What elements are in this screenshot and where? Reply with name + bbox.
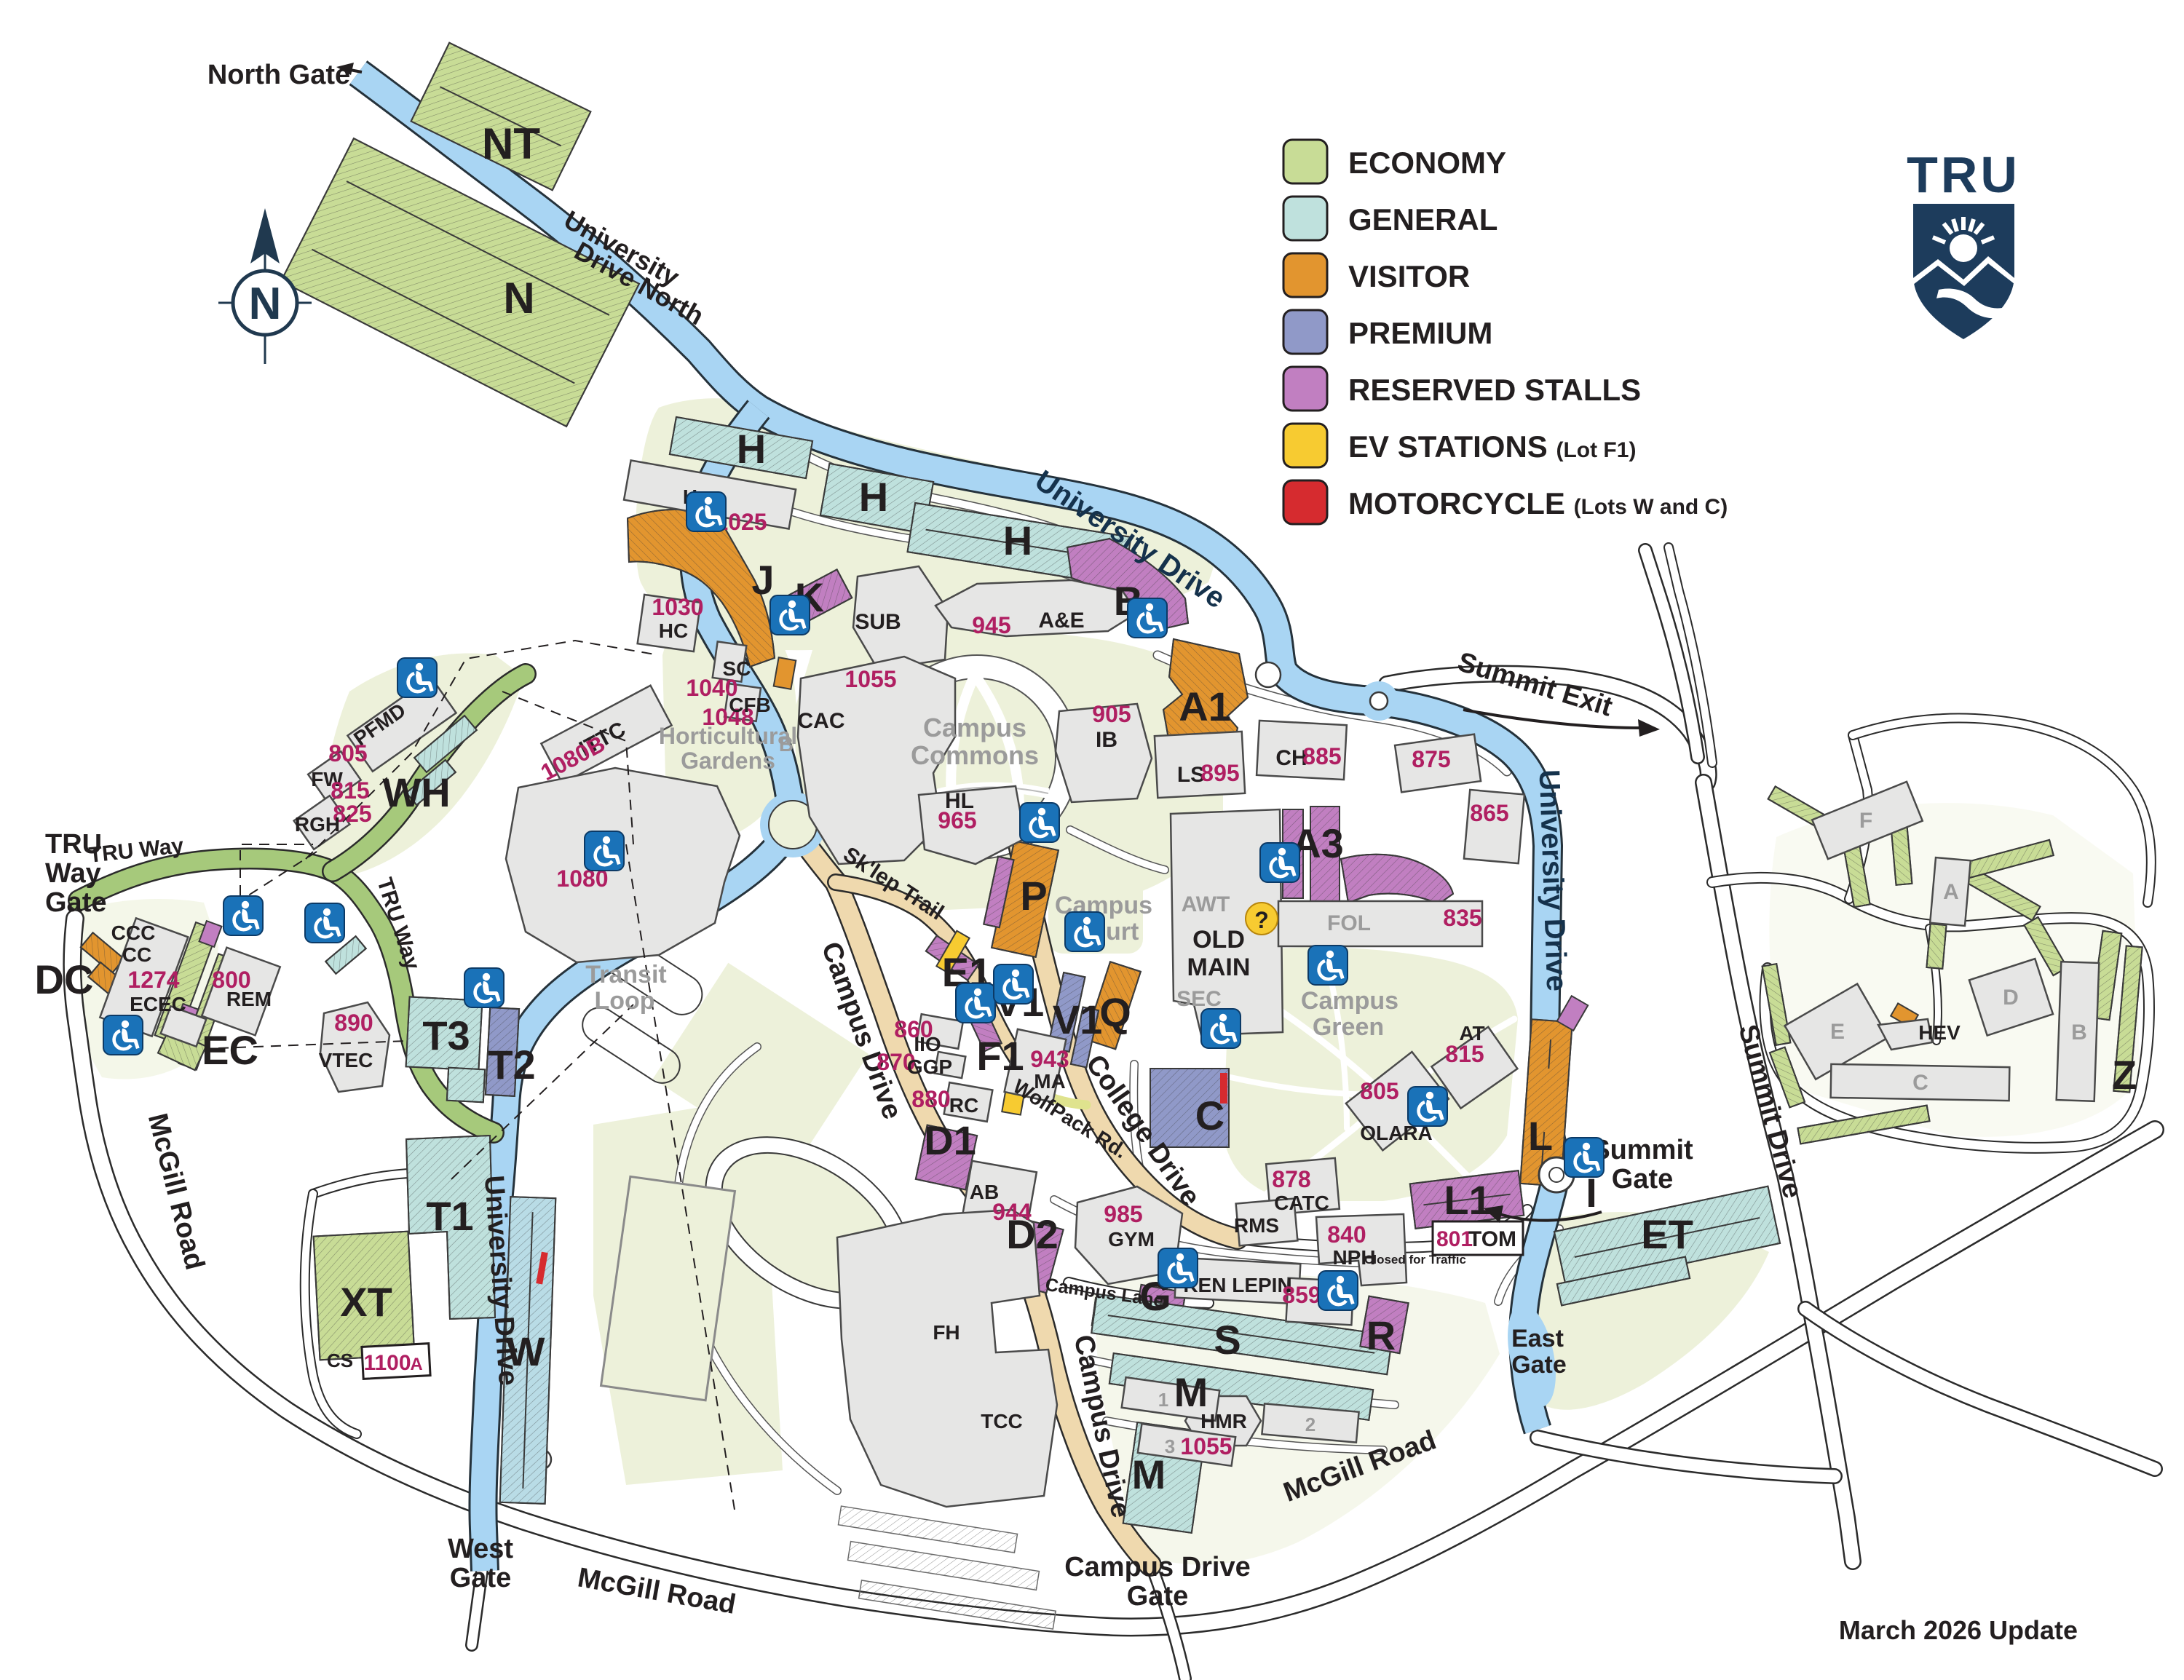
svg-text:Gate: Gate [45,887,106,918]
svg-text:SUB: SUB [855,610,901,634]
svg-text:805: 805 [1360,1078,1398,1104]
svg-text:F: F [1859,809,1872,833]
svg-text:880: 880 [911,1086,950,1112]
svg-text:North Gate: North Gate [207,60,350,90]
svg-text:P: P [1020,873,1047,919]
svg-text:N: N [249,279,282,329]
svg-text:MAIN: MAIN [1187,954,1251,981]
svg-text:E: E [1830,1020,1845,1044]
svg-text:AWT: AWT [1182,892,1230,916]
svg-text:PREMIUM: PREMIUM [1348,316,1492,350]
svg-text:West: West [448,1534,513,1564]
svg-text:885: 885 [1302,743,1341,769]
svg-text:Gate: Gate [1511,1351,1567,1379]
svg-text:WH: WH [382,769,450,815]
svg-text:2: 2 [1305,1414,1315,1435]
svg-text:Z: Z [2112,1052,2137,1098]
svg-text:Closed for Traffic: Closed for Traffic [1364,1253,1466,1267]
svg-text:CFB: CFB [729,694,771,716]
svg-text:SC: SC [723,657,751,680]
svg-text:OLD: OLD [1192,926,1245,954]
svg-text:C: C [1912,1071,1928,1095]
svg-text:Campus: Campus [923,713,1026,742]
svg-text:801: 801 [1436,1227,1473,1251]
svg-text:GYM: GYM [1108,1228,1155,1251]
svg-text:W: W [507,1328,545,1374]
svg-text:H: H [737,426,766,472]
svg-text:?: ? [1254,907,1269,933]
svg-text:T3: T3 [422,1013,470,1058]
svg-text:1: 1 [1158,1389,1168,1411]
svg-text:1100: 1100 [363,1351,411,1375]
svg-text:CS: CS [327,1350,353,1371]
svg-text:985: 985 [1104,1201,1142,1227]
svg-text:CATC: CATC [1274,1192,1329,1214]
svg-text:Campus: Campus [1301,987,1398,1015]
svg-text:3: 3 [1165,1435,1175,1457]
svg-text:REM: REM [226,988,272,1010]
svg-text:N: N [503,274,534,322]
svg-text:Campus Drive: Campus Drive [1064,1552,1251,1582]
svg-text:D1: D1 [924,1117,976,1163]
svg-text:IIO: IIO [914,1033,941,1055]
svg-text:A: A [1943,880,1959,904]
svg-text:TRU: TRU [1907,146,2020,203]
svg-text:M: M [1132,1451,1166,1497]
svg-text:TOM: TOM [1468,1227,1516,1251]
svg-text:1030: 1030 [652,594,703,620]
svg-text:835: 835 [1443,905,1481,931]
svg-text:B: B [779,733,794,756]
svg-text:1055: 1055 [1180,1433,1232,1459]
svg-text:A1: A1 [1179,684,1231,729]
svg-text:805: 805 [328,740,367,766]
svg-text:NT: NT [482,119,540,168]
svg-text:Loop: Loop [594,987,654,1015]
svg-text:J: J [751,557,774,603]
svg-text:EC: EC [202,1027,258,1073]
svg-text:944: 944 [992,1199,1032,1225]
svg-text:875: 875 [1412,746,1450,772]
svg-text:R: R [1366,1312,1396,1358]
svg-text:A&E: A&E [1038,609,1084,633]
svg-text:SEC: SEC [1176,987,1222,1011]
svg-text:HEV: HEV [1918,1021,1961,1044]
svg-text:T1: T1 [426,1193,473,1239]
svg-text:H: H [859,474,888,520]
svg-text:895: 895 [1200,760,1239,786]
svg-text:905: 905 [1092,701,1131,727]
svg-text:965: 965 [938,807,976,833]
svg-text:S: S [1214,1317,1241,1363]
svg-text:Gate: Gate [1127,1581,1188,1612]
svg-text:Gate: Gate [1612,1164,1673,1194]
svg-text:943: 943 [1030,1046,1069,1072]
svg-text:815: 815 [1445,1041,1484,1067]
svg-text:Q: Q [1099,989,1131,1035]
svg-text:Commons: Commons [911,740,1039,770]
svg-text:VTEC: VTEC [319,1049,373,1071]
svg-text:F1: F1 [976,1033,1024,1079]
svg-text:FOL: FOL [1327,911,1371,935]
svg-text:V1: V1 [1053,996,1103,1042]
svg-text:878: 878 [1272,1166,1310,1192]
svg-text:945: 945 [972,612,1010,638]
svg-text:C: C [1195,1093,1224,1138]
svg-text:859: 859 [1282,1282,1321,1308]
svg-text:HC: HC [659,619,688,642]
svg-text:FH: FH [933,1321,960,1344]
svg-text:VISITOR: VISITOR [1348,259,1470,293]
svg-text:1055: 1055 [844,666,896,692]
svg-text:RESERVED STALLS: RESERVED STALLS [1348,373,1641,407]
svg-text:840: 840 [1327,1221,1366,1248]
svg-text:NPH: NPH [1332,1246,1375,1269]
svg-text:East: East [1511,1325,1564,1352]
svg-text:D: D [2003,986,2019,1010]
svg-text:HMR: HMR [1200,1410,1247,1433]
svg-text:XT: XT [340,1279,392,1325]
svg-text:Transit: Transit [585,961,666,988]
svg-text:GGP: GGP [907,1055,952,1078]
svg-text:CCC: CCC [111,922,156,944]
svg-text:RMS: RMS [1234,1214,1279,1237]
svg-text:CAC: CAC [798,709,845,733]
svg-text:Gate: Gate [450,1563,511,1593]
svg-text:TCC: TCC [981,1410,1023,1433]
svg-text:A: A [410,1355,422,1374]
svg-text:KEN LEPIN: KEN LEPIN [1183,1274,1291,1296]
svg-text:RC: RC [949,1094,978,1117]
svg-text:DC: DC [35,956,94,1002]
svg-text:ECEC: ECEC [130,993,186,1015]
svg-text:865: 865 [1470,800,1508,826]
svg-text:H: H [1003,518,1032,563]
svg-text:Summit: Summit [1591,1135,1693,1165]
svg-text:L: L [1528,1113,1553,1159]
svg-text:Green: Green [1313,1013,1384,1041]
svg-text:M: M [1174,1369,1208,1415]
svg-text:March 2026 Update: March 2026 Update [1839,1615,2078,1645]
svg-text:890: 890 [334,1010,373,1036]
svg-text:GENERAL: GENERAL [1348,202,1497,237]
svg-text:B: B [2071,1021,2087,1045]
svg-text:ET: ET [1641,1211,1693,1257]
svg-text:L1: L1 [1444,1177,1491,1223]
svg-text:ECONOMY: ECONOMY [1348,146,1506,180]
svg-text:MA: MA [1034,1070,1066,1093]
svg-text:Gardens: Gardens [681,748,775,774]
svg-text:815: 815 [331,777,369,804]
svg-text:T2: T2 [488,1042,535,1087]
svg-text:IB: IB [1096,728,1117,752]
svg-text:RGH: RGH [295,813,340,836]
svg-text:1274: 1274 [127,967,179,993]
svg-text:CC: CC [122,943,151,966]
